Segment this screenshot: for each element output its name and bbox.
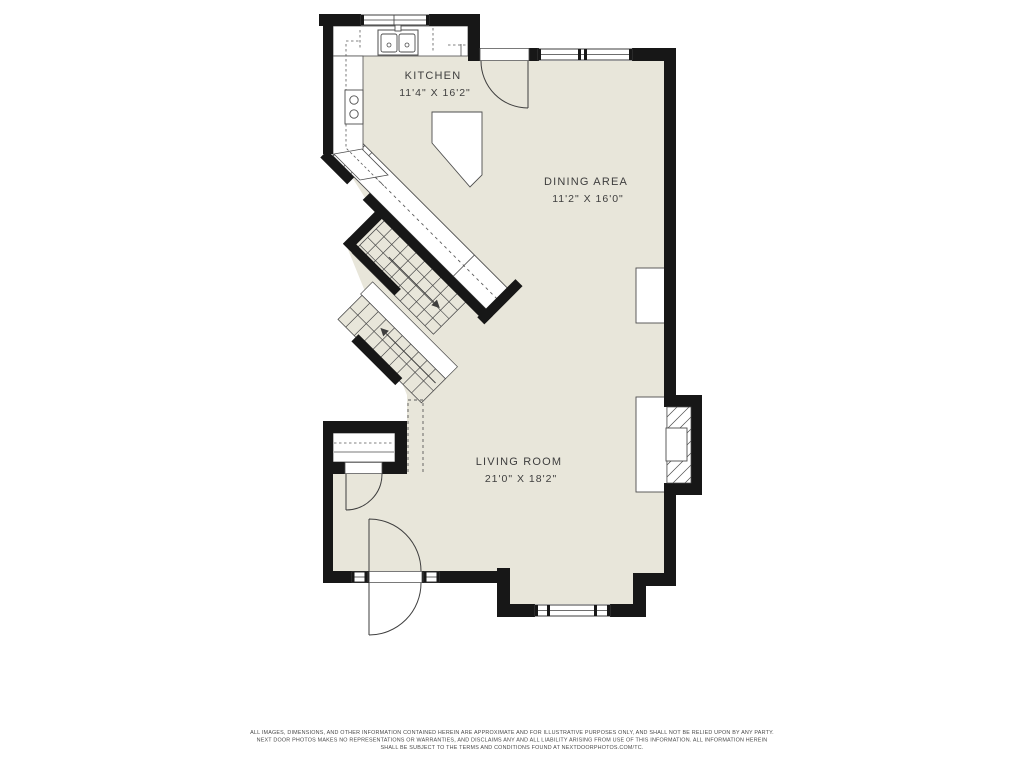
room-dimensions: 11'4" X 16'2" bbox=[399, 87, 471, 99]
faucet-icon bbox=[395, 25, 401, 31]
floor-plan-page: KITCHEN 11'4" X 16'2" DINING AREA 11'2" … bbox=[0, 0, 1024, 768]
footer-disclaimer: ALL IMAGES, DIMENSIONS, AND OTHER INFORM… bbox=[250, 730, 774, 751]
room-dimensions: 21'0" X 18'2" bbox=[485, 473, 557, 485]
room-dimensions: 11'2" X 16'0" bbox=[552, 193, 624, 205]
firebox bbox=[666, 428, 687, 461]
floor-plan: KITCHEN 11'4" X 16'2" DINING AREA 11'2" … bbox=[0, 0, 1024, 768]
room-name: KITCHEN bbox=[405, 70, 462, 82]
room-name: LIVING ROOM bbox=[476, 456, 563, 468]
fireplace-hearth bbox=[636, 397, 667, 492]
front-right-window bbox=[424, 572, 439, 582]
fireplace bbox=[664, 393, 702, 501]
disclaimer-line: ALL IMAGES, DIMENSIONS, AND OTHER INFORM… bbox=[250, 730, 774, 736]
kitchen-stove bbox=[345, 90, 363, 124]
dining-window bbox=[538, 49, 632, 60]
room-name: DINING AREA bbox=[544, 176, 628, 188]
kitchen-window bbox=[361, 15, 429, 25]
disclaimer-line: SHALL BE SUBJECT TO THE TERMS AND CONDIT… bbox=[380, 745, 643, 751]
kitchen-sink bbox=[378, 25, 418, 55]
bay-window bbox=[535, 605, 610, 616]
window-seat bbox=[636, 268, 666, 323]
front-left-window bbox=[352, 572, 367, 582]
disclaimer-line: NEXT DOOR PHOTOS MAKES NO REPRESENTATION… bbox=[257, 738, 768, 744]
entry-closet bbox=[333, 433, 395, 462]
